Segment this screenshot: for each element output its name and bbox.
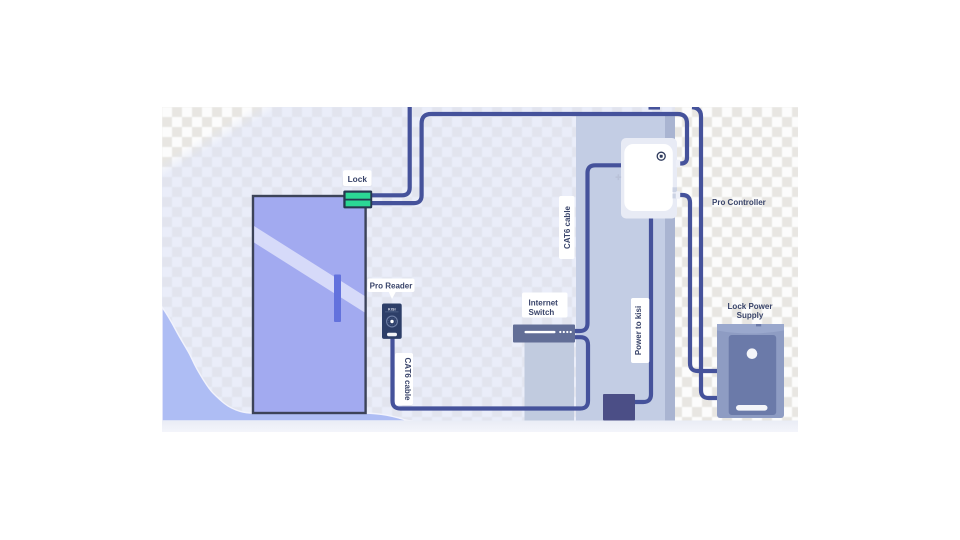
svg-text:Pro Reader: Pro Reader	[370, 282, 413, 291]
svg-text:Lock: Lock	[348, 174, 368, 184]
svg-text:Internet: Internet	[529, 298, 559, 307]
svg-text:KISI: KISI	[388, 308, 396, 312]
svg-text:Power to kisi: Power to kisi	[634, 306, 643, 355]
svg-text:Lock Power: Lock Power	[728, 302, 773, 311]
svg-text:Switch: Switch	[529, 308, 555, 317]
svg-text:Supply: Supply	[737, 311, 764, 320]
svg-text:CAT6 cable: CAT6 cable	[403, 358, 412, 402]
svg-text:Pro Controller: Pro Controller	[712, 198, 766, 207]
svg-text:CAT6 cable: CAT6 cable	[563, 205, 572, 249]
